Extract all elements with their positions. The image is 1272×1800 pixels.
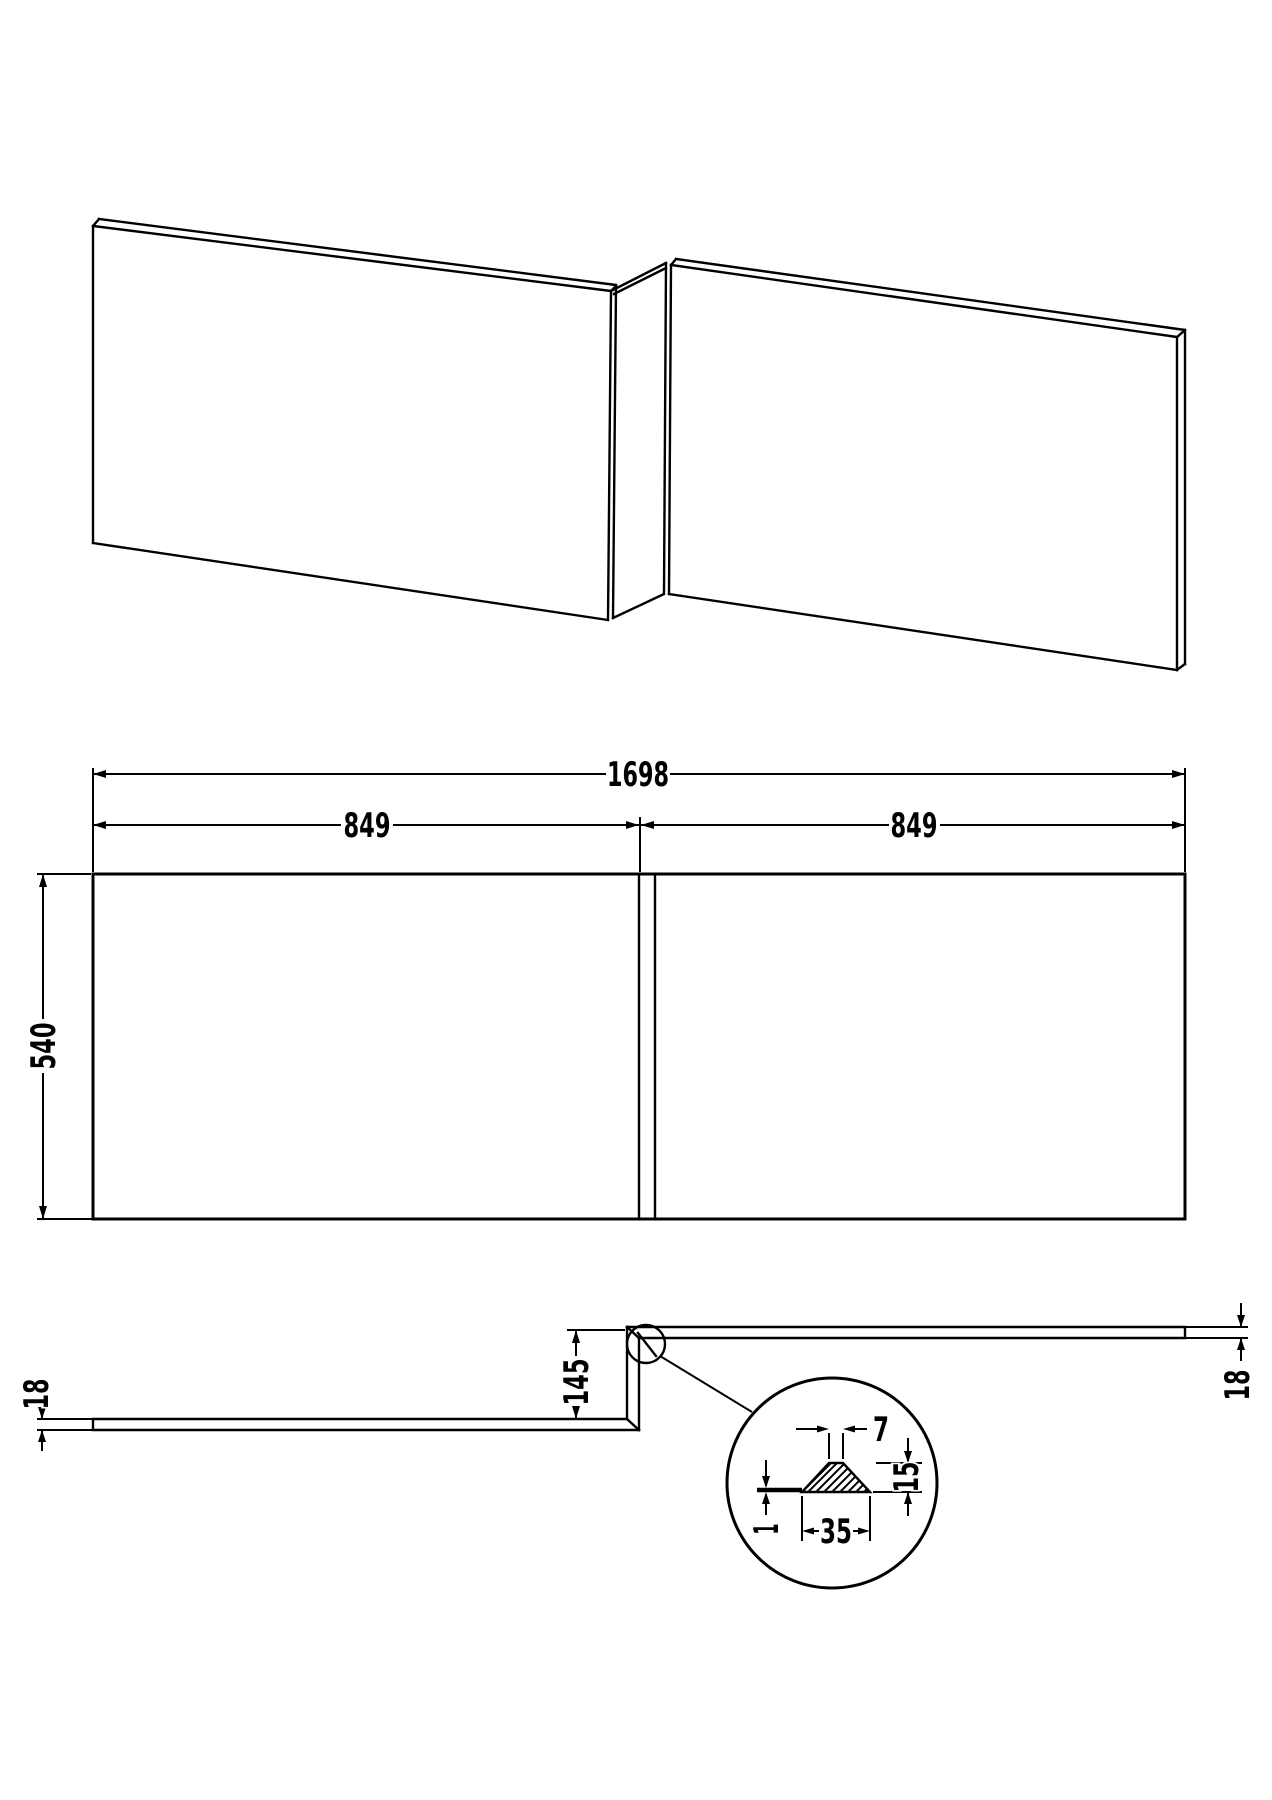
dim-return-depth: 145 <box>557 1330 597 1419</box>
dim-thickness-right-label: 18 <box>1218 1370 1258 1401</box>
arrowhead-right <box>1172 821 1185 829</box>
dim-panel-height: 540 <box>24 874 64 1219</box>
front-extension-lines <box>37 768 1185 1219</box>
detail-marker-slash <box>638 1333 656 1356</box>
plan-extension-lines <box>37 1327 1248 1430</box>
dim-panel-height-label: 540 <box>24 1023 64 1070</box>
arrowhead-down <box>39 1206 47 1219</box>
right-panel-outline <box>669 259 1185 670</box>
arrowhead-down <box>1237 1315 1245 1327</box>
plan-left-arm <box>93 1419 639 1430</box>
dim-detail-edge-thickness-label: 1 <box>747 1524 787 1535</box>
arrowhead-left <box>641 821 654 829</box>
pictorial-view <box>93 219 1185 670</box>
dim-total-width: 1698 <box>93 755 1185 795</box>
arrowhead-up <box>904 1492 912 1504</box>
arrowhead-right <box>817 1426 829 1433</box>
dim-thickness-right: 18 <box>1218 1303 1258 1401</box>
arrowhead-down <box>904 1451 912 1463</box>
dim-detail-bottom-width-label: 35 <box>820 1512 852 1552</box>
arrowhead-up <box>39 874 47 887</box>
arrowhead-left <box>802 1528 814 1535</box>
arrowhead-right <box>1172 770 1185 778</box>
dim-detail-top-width-label: 7 <box>873 1410 889 1450</box>
dim-detail-top-width: 7 <box>796 1410 889 1459</box>
dim-thickness-left-label: 18 <box>17 1379 57 1410</box>
detail-view: 7 15 35 1 <box>727 1378 937 1588</box>
dim-left-panel-width-label: 849 <box>344 806 391 846</box>
arrowhead-down <box>762 1476 770 1488</box>
return-fold-outline <box>611 263 671 618</box>
dim-left-panel-width: 849 <box>93 806 639 846</box>
plan-right-arm <box>627 1327 1185 1338</box>
arrowhead-right <box>626 821 639 829</box>
arrowhead-up <box>572 1330 580 1343</box>
dim-thickness-left: 18 <box>17 1379 57 1452</box>
arrowhead-up <box>38 1430 46 1442</box>
dim-return-depth-label: 145 <box>557 1359 597 1406</box>
dim-detail-bottom-width: 35 <box>802 1496 870 1552</box>
arrowhead-right <box>858 1528 870 1535</box>
arrowhead-up <box>762 1492 770 1504</box>
detail-leader-line <box>660 1356 752 1412</box>
front-view: 1698 849 849 540 <box>24 755 1185 1219</box>
dim-right-panel-width-label: 849 <box>891 806 938 846</box>
arrowhead-left <box>843 1426 855 1433</box>
dim-right-panel-width: 849 <box>641 806 1185 846</box>
arrowhead-left <box>93 821 106 829</box>
arrowhead-up <box>1237 1338 1245 1350</box>
plan-return <box>627 1327 639 1430</box>
dim-detail-height-label: 15 <box>887 1462 927 1493</box>
plan-view: 18 145 18 <box>17 1303 1258 1451</box>
dim-total-width-label: 1698 <box>607 755 669 795</box>
dim-detail-edge-thickness: 1 <box>747 1460 787 1535</box>
arrowhead-left <box>93 770 106 778</box>
drawing-sheet: 1698 849 849 540 <box>0 0 1272 1800</box>
technical-drawing: 1698 849 849 540 <box>0 0 1272 1800</box>
front-panel-joint-lines <box>639 874 655 1219</box>
arrowhead-down <box>572 1406 580 1419</box>
left-panel-outline <box>93 219 616 620</box>
